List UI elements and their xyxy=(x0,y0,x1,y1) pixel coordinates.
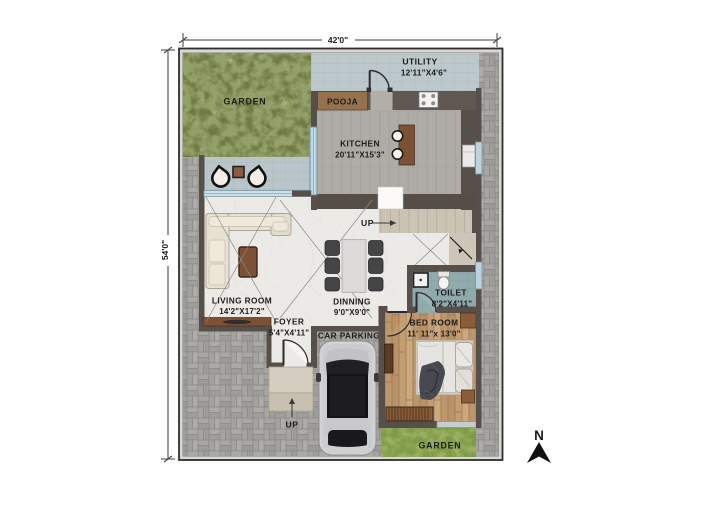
svg-text:UTILITY: UTILITY xyxy=(402,57,437,67)
svg-text:DINNING: DINNING xyxy=(333,297,371,307)
svg-text:12'11"X4'6": 12'11"X4'6" xyxy=(401,69,447,78)
svg-text:KITCHEN: KITCHEN xyxy=(340,139,380,149)
svg-text:UP: UP xyxy=(286,420,299,430)
svg-text:UP: UP xyxy=(361,218,374,228)
svg-text:8'2"X4'11": 8'2"X4'11" xyxy=(432,300,473,309)
svg-text:N: N xyxy=(534,428,544,443)
svg-text:POOJA: POOJA xyxy=(327,97,358,107)
svg-text:11' 11"x 13'0": 11' 11"x 13'0" xyxy=(407,330,460,339)
svg-text:GARDEN: GARDEN xyxy=(224,97,267,107)
svg-text:54'0": 54'0" xyxy=(160,240,170,260)
svg-text:9'0"X9'0": 9'0"X9'0" xyxy=(334,308,370,317)
svg-text:5'4"X4'11": 5'4"X4'11" xyxy=(269,329,310,338)
svg-text:GARDEN: GARDEN xyxy=(419,441,462,451)
svg-text:LIVING ROOM: LIVING ROOM xyxy=(212,296,272,306)
svg-text:42'0": 42'0" xyxy=(328,35,348,45)
svg-text:FOYER: FOYER xyxy=(274,317,305,327)
svg-text:20'11"X15'3": 20'11"X15'3" xyxy=(335,151,385,160)
svg-text:14'2"X17'2": 14'2"X17'2" xyxy=(219,307,265,316)
svg-text:BED ROOM: BED ROOM xyxy=(410,318,459,328)
svg-text:CAR PARKING: CAR PARKING xyxy=(318,331,380,341)
svg-text:TOILET: TOILET xyxy=(435,288,467,298)
